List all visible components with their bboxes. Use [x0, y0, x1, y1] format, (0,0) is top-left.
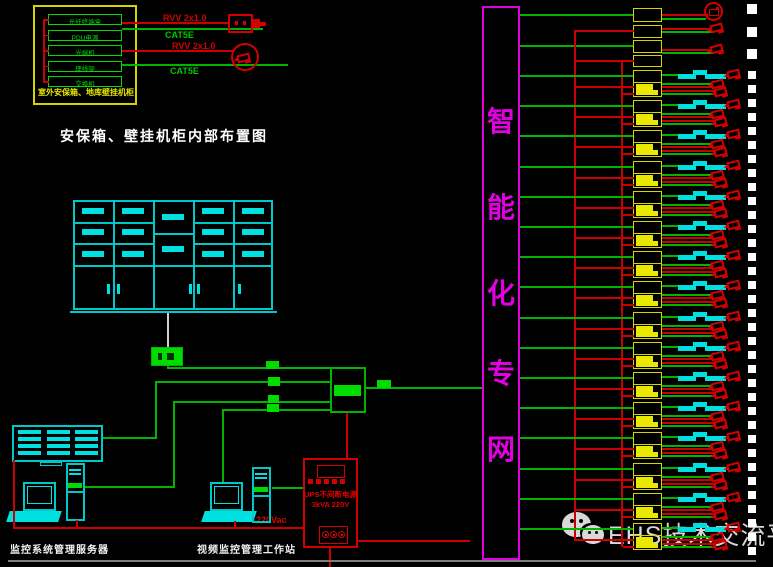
wire [662, 74, 679, 76]
wall-divider [73, 265, 273, 267]
wire [662, 452, 716, 454]
wire [662, 415, 712, 417]
wire [662, 134, 679, 136]
power-branch [576, 297, 634, 299]
wire [662, 116, 712, 118]
camera-icon [726, 341, 741, 352]
wall-dash [748, 491, 756, 499]
wall-dash [748, 379, 756, 387]
ups-button [308, 479, 313, 484]
array-slot [47, 430, 70, 434]
wall-dash [748, 295, 756, 303]
device-fill [636, 241, 658, 246]
array-slot [75, 437, 98, 441]
camera-icon [713, 117, 728, 128]
power-branch [623, 335, 634, 337]
socket-plug [260, 22, 266, 26]
power-branch [576, 539, 634, 541]
monitor-bar [122, 208, 144, 214]
device-fill [636, 332, 658, 337]
cabinet-handle [189, 284, 192, 294]
ups-button [316, 479, 321, 484]
wire [662, 14, 708, 16]
device-fill [636, 422, 658, 427]
camera-icon [713, 359, 728, 370]
wall-divider [73, 243, 153, 245]
device-fill [636, 392, 658, 397]
array-slot [18, 437, 41, 441]
wall-dash [748, 127, 756, 135]
cabinet-power-bus [43, 19, 45, 81]
cabinet-handle [197, 284, 200, 294]
keyboard-icon [201, 511, 257, 522]
cabinet-handle [238, 284, 241, 294]
power-branch [623, 214, 634, 216]
wire [662, 546, 716, 548]
wire [662, 294, 712, 296]
power-branch [576, 146, 634, 148]
camera-icon [726, 99, 741, 110]
wire [662, 297, 712, 299]
power-branch [576, 358, 634, 360]
array-slot [47, 444, 70, 448]
wire-label: RVV 2x1.0 [163, 13, 206, 23]
wall-drop-line [167, 313, 169, 347]
array-base [40, 462, 62, 466]
power-branch [623, 546, 634, 548]
wire [662, 358, 712, 360]
fiber-line [520, 468, 633, 470]
cabinet-module-label: 光纤终端盒 [48, 16, 122, 26]
power-branch [576, 509, 634, 511]
tower-slot [69, 469, 81, 471]
socket-plug [253, 19, 260, 28]
wire [662, 31, 711, 33]
wall-dash [747, 4, 757, 14]
wall-dash [748, 449, 756, 457]
fiber-line [520, 105, 633, 107]
wall-divider [153, 200, 155, 310]
wire [662, 395, 716, 397]
wire [662, 204, 712, 206]
wire [662, 483, 716, 485]
network-char: 化 [484, 272, 518, 312]
net-line [272, 487, 303, 489]
wire [662, 271, 716, 273]
wire [662, 543, 716, 545]
wire [662, 120, 716, 122]
wire [662, 113, 712, 115]
wire [662, 418, 712, 420]
camera-icon [713, 208, 728, 219]
cabinet-module-label: 交换机 [48, 78, 122, 88]
power-branch [576, 448, 634, 450]
power-branch [623, 516, 634, 518]
camera-icon [713, 298, 728, 309]
power-branch [576, 237, 634, 239]
wall-dash [748, 547, 756, 555]
wall-dash [748, 71, 756, 79]
cabinet-module-label: 光端机 [48, 47, 122, 57]
wire [662, 83, 712, 85]
cabinet-power-stub [43, 81, 49, 83]
tower-slot [255, 477, 267, 479]
fiber-line [520, 166, 633, 168]
wall-divider [113, 200, 115, 310]
socket-pin [243, 21, 246, 25]
fiber-line [520, 226, 633, 228]
wire [662, 146, 712, 148]
camera-icon [726, 371, 741, 382]
fiber-line [520, 528, 633, 530]
outlet-icon [322, 531, 329, 538]
wall-divider [193, 222, 273, 224]
power-socket-icon [228, 14, 253, 33]
wall-divider [153, 233, 195, 235]
cabinet-diagram-title: 安保箱、壁挂机柜内部布置图 [60, 126, 268, 146]
wall-divider [193, 200, 195, 310]
array-slot [18, 444, 41, 448]
net-line [167, 367, 330, 369]
wire [662, 506, 712, 508]
power-branch [576, 418, 634, 420]
wire [662, 325, 712, 327]
cable-tap [268, 377, 280, 386]
bottom-rule [8, 560, 756, 562]
wire [222, 409, 224, 483]
wire [662, 436, 679, 438]
monitor-bar [82, 251, 104, 257]
wire [662, 174, 712, 176]
tower-slot [69, 473, 81, 475]
wire [662, 267, 712, 269]
cabinet-module-label: PDU电源 [48, 32, 122, 42]
fiber-line [520, 347, 633, 349]
power-branch [623, 93, 634, 95]
cabinet-handle [107, 284, 110, 294]
wire [662, 207, 712, 209]
power-branch [576, 479, 634, 481]
device-fill [636, 301, 658, 306]
network-char: 能 [484, 186, 518, 226]
camera-icon [726, 69, 741, 80]
wire-label: CAT5E [170, 66, 199, 76]
wall-dash [748, 85, 756, 93]
wire [662, 425, 716, 427]
camera-icon [713, 238, 728, 249]
monitor-bar [82, 229, 104, 235]
power-branch [576, 328, 634, 330]
camera-icon [709, 44, 724, 55]
wire [662, 335, 716, 337]
wire [662, 539, 712, 541]
array-slot [75, 444, 98, 448]
wall-dash [748, 365, 756, 373]
wire [662, 241, 716, 243]
camera-icon [713, 480, 728, 491]
wire [662, 385, 712, 387]
camera-icon [713, 268, 728, 279]
device-fill [636, 362, 658, 367]
device-fill [636, 181, 658, 186]
device-fill [636, 543, 658, 548]
wire [662, 479, 712, 481]
wall-dash [748, 309, 756, 317]
camera-icon [709, 23, 724, 34]
power-branch [623, 365, 634, 367]
wire [662, 177, 712, 179]
wire [662, 49, 711, 51]
device-fill [636, 120, 658, 125]
wire [662, 301, 716, 303]
wire [662, 211, 716, 213]
camera-icon [713, 87, 728, 98]
power-branch [576, 30, 634, 32]
cad-drawing-canvas: 安保箱、壁挂机柜内部布置图 室外安保箱、地库壁挂机柜 220Vac UPS不间断… [0, 0, 773, 567]
ups-to-switch-power [346, 413, 348, 458]
camera-icon [726, 250, 741, 261]
wall-dash [747, 27, 757, 37]
power-branch [576, 116, 634, 118]
monitor-screen [214, 486, 239, 504]
camera-icon [726, 280, 741, 291]
power-branch [623, 274, 634, 276]
power-line [329, 548, 331, 567]
wall-dash [748, 113, 756, 121]
camera-icon [713, 329, 728, 340]
wire [662, 476, 712, 478]
workstation-label: 视频监控管理工作站 [197, 541, 296, 556]
device-fill [636, 150, 658, 155]
camera-icon [726, 401, 741, 412]
device-fill [636, 513, 658, 518]
power-branch [576, 267, 634, 269]
power-branch [623, 304, 634, 306]
wire [662, 52, 711, 54]
power-branch [576, 388, 634, 390]
tower-line [252, 495, 271, 497]
ups-button [332, 479, 337, 484]
wall-divider [233, 200, 235, 310]
wall-dash [748, 197, 756, 205]
wire [662, 332, 716, 334]
power-branch [623, 455, 634, 457]
wire [155, 381, 157, 439]
camera-icon [726, 129, 741, 140]
power-bus-220v [13, 527, 304, 529]
wire [662, 274, 716, 276]
device-box [633, 25, 662, 38]
device-box [633, 40, 662, 53]
wall-dash [748, 99, 756, 107]
wire [662, 285, 679, 287]
monitor-bar [242, 208, 264, 214]
camera-icon [726, 311, 741, 322]
wire-label: CAT5E [165, 30, 194, 40]
wall-dash [748, 351, 756, 359]
decoder-mark [158, 353, 162, 360]
wire [662, 536, 712, 538]
monitor-bar [242, 229, 264, 235]
wire [662, 376, 679, 378]
wire [662, 123, 716, 125]
server-label: 监控系统管理服务器 [10, 541, 109, 556]
monitor-screen [27, 486, 52, 504]
power-branch [623, 425, 634, 427]
wire [662, 90, 716, 92]
power-branch [623, 153, 634, 155]
device-box [633, 55, 662, 67]
monitor-bar [82, 208, 104, 214]
cable-tap [377, 380, 391, 388]
wire [662, 392, 716, 394]
wall-dash [748, 337, 756, 345]
wall-dash [748, 239, 756, 247]
cable-tap [266, 361, 279, 369]
wall-baseline [70, 311, 277, 313]
wire [173, 401, 175, 488]
wire [662, 244, 716, 246]
monitor-bar [162, 214, 184, 220]
wire [662, 304, 716, 306]
wire [662, 346, 679, 348]
wire [662, 509, 712, 511]
wall-dash [748, 435, 756, 443]
wire [662, 93, 716, 95]
wire [662, 355, 712, 357]
camera-icon [726, 522, 741, 533]
wall-dash [748, 211, 756, 219]
camera-icon [713, 147, 728, 158]
wire [662, 184, 716, 186]
wire [662, 406, 679, 408]
wall-dash [748, 225, 756, 233]
net-line [155, 381, 332, 383]
device-box [633, 8, 662, 22]
wire [662, 513, 716, 515]
wall-dash [748, 169, 756, 177]
ups-display [317, 465, 345, 478]
cabinet-module-label: 理线架 [48, 63, 122, 73]
wall-dash [748, 393, 756, 401]
camera-icon [713, 178, 728, 189]
net-line [103, 437, 157, 439]
dome-camera-icon [704, 2, 723, 21]
fiber-line [520, 498, 633, 500]
monitor-bar [242, 251, 264, 257]
wall-dash [748, 533, 756, 541]
array-slot [75, 430, 98, 434]
cat5e-wire [122, 64, 288, 66]
device-fill [636, 483, 658, 488]
wire [662, 28, 711, 30]
power-branch [623, 486, 634, 488]
monitor-bar [202, 229, 224, 235]
camera-icon [713, 389, 728, 400]
wall-dash [748, 155, 756, 163]
array-slot [47, 451, 70, 455]
array-slot [18, 451, 41, 455]
power-branch [576, 207, 634, 209]
fiber-line [520, 407, 633, 409]
wall-dash [747, 49, 757, 59]
fiber-line [520, 377, 633, 379]
wire [662, 181, 716, 183]
ups-button [324, 479, 329, 484]
camera-icon [726, 160, 741, 171]
fiber-line [520, 437, 633, 439]
fiber-line [520, 135, 633, 137]
tower-band [68, 483, 82, 488]
cable-tap [268, 395, 279, 403]
wire [662, 225, 679, 227]
camera-icon [726, 220, 741, 231]
wire [662, 516, 716, 518]
cabinet-handle [117, 284, 120, 294]
wall-divider [193, 243, 273, 245]
power-line [13, 460, 15, 529]
array-slot [75, 451, 98, 455]
fiber-line [520, 75, 633, 77]
network-char: 智 [484, 100, 518, 140]
fiber-line [520, 196, 633, 198]
wire [662, 388, 712, 390]
wire [662, 497, 679, 499]
switch-bar [334, 385, 361, 396]
wire [662, 214, 716, 216]
decoder-mark [167, 353, 174, 360]
wire [662, 455, 716, 457]
wall-divider [73, 222, 153, 224]
power-branch [576, 177, 634, 179]
camera-icon [726, 190, 741, 201]
network-char: 网 [484, 428, 518, 468]
wire [662, 486, 716, 488]
wire [662, 467, 679, 469]
tower-band [254, 487, 268, 492]
wall-dash [748, 253, 756, 261]
wire [662, 328, 712, 330]
array-slot [18, 430, 41, 434]
wire [662, 365, 716, 367]
wire [662, 237, 712, 239]
fiber-line [520, 286, 633, 288]
wall-dash [748, 267, 756, 275]
wire [662, 18, 706, 20]
camera-icon [713, 510, 728, 521]
wire [662, 362, 716, 364]
fiber-line [520, 45, 633, 47]
camera-icon [236, 53, 251, 64]
wire [662, 316, 679, 318]
wall-dash [748, 421, 756, 429]
power-branch [623, 244, 634, 246]
wall-dash [748, 141, 756, 149]
outlet-icon [338, 531, 345, 538]
wall-dash [748, 323, 756, 331]
wire-label: RVV 2x1.0 [172, 41, 215, 51]
array-slot [47, 437, 70, 441]
wire [662, 143, 712, 145]
wire [662, 104, 679, 106]
wire [662, 86, 712, 88]
camera-icon [726, 431, 741, 442]
socket-pin [235, 21, 238, 25]
wire [662, 445, 712, 447]
wire [662, 422, 716, 424]
wall-dash [748, 463, 756, 471]
network-char: 专 [484, 352, 518, 392]
